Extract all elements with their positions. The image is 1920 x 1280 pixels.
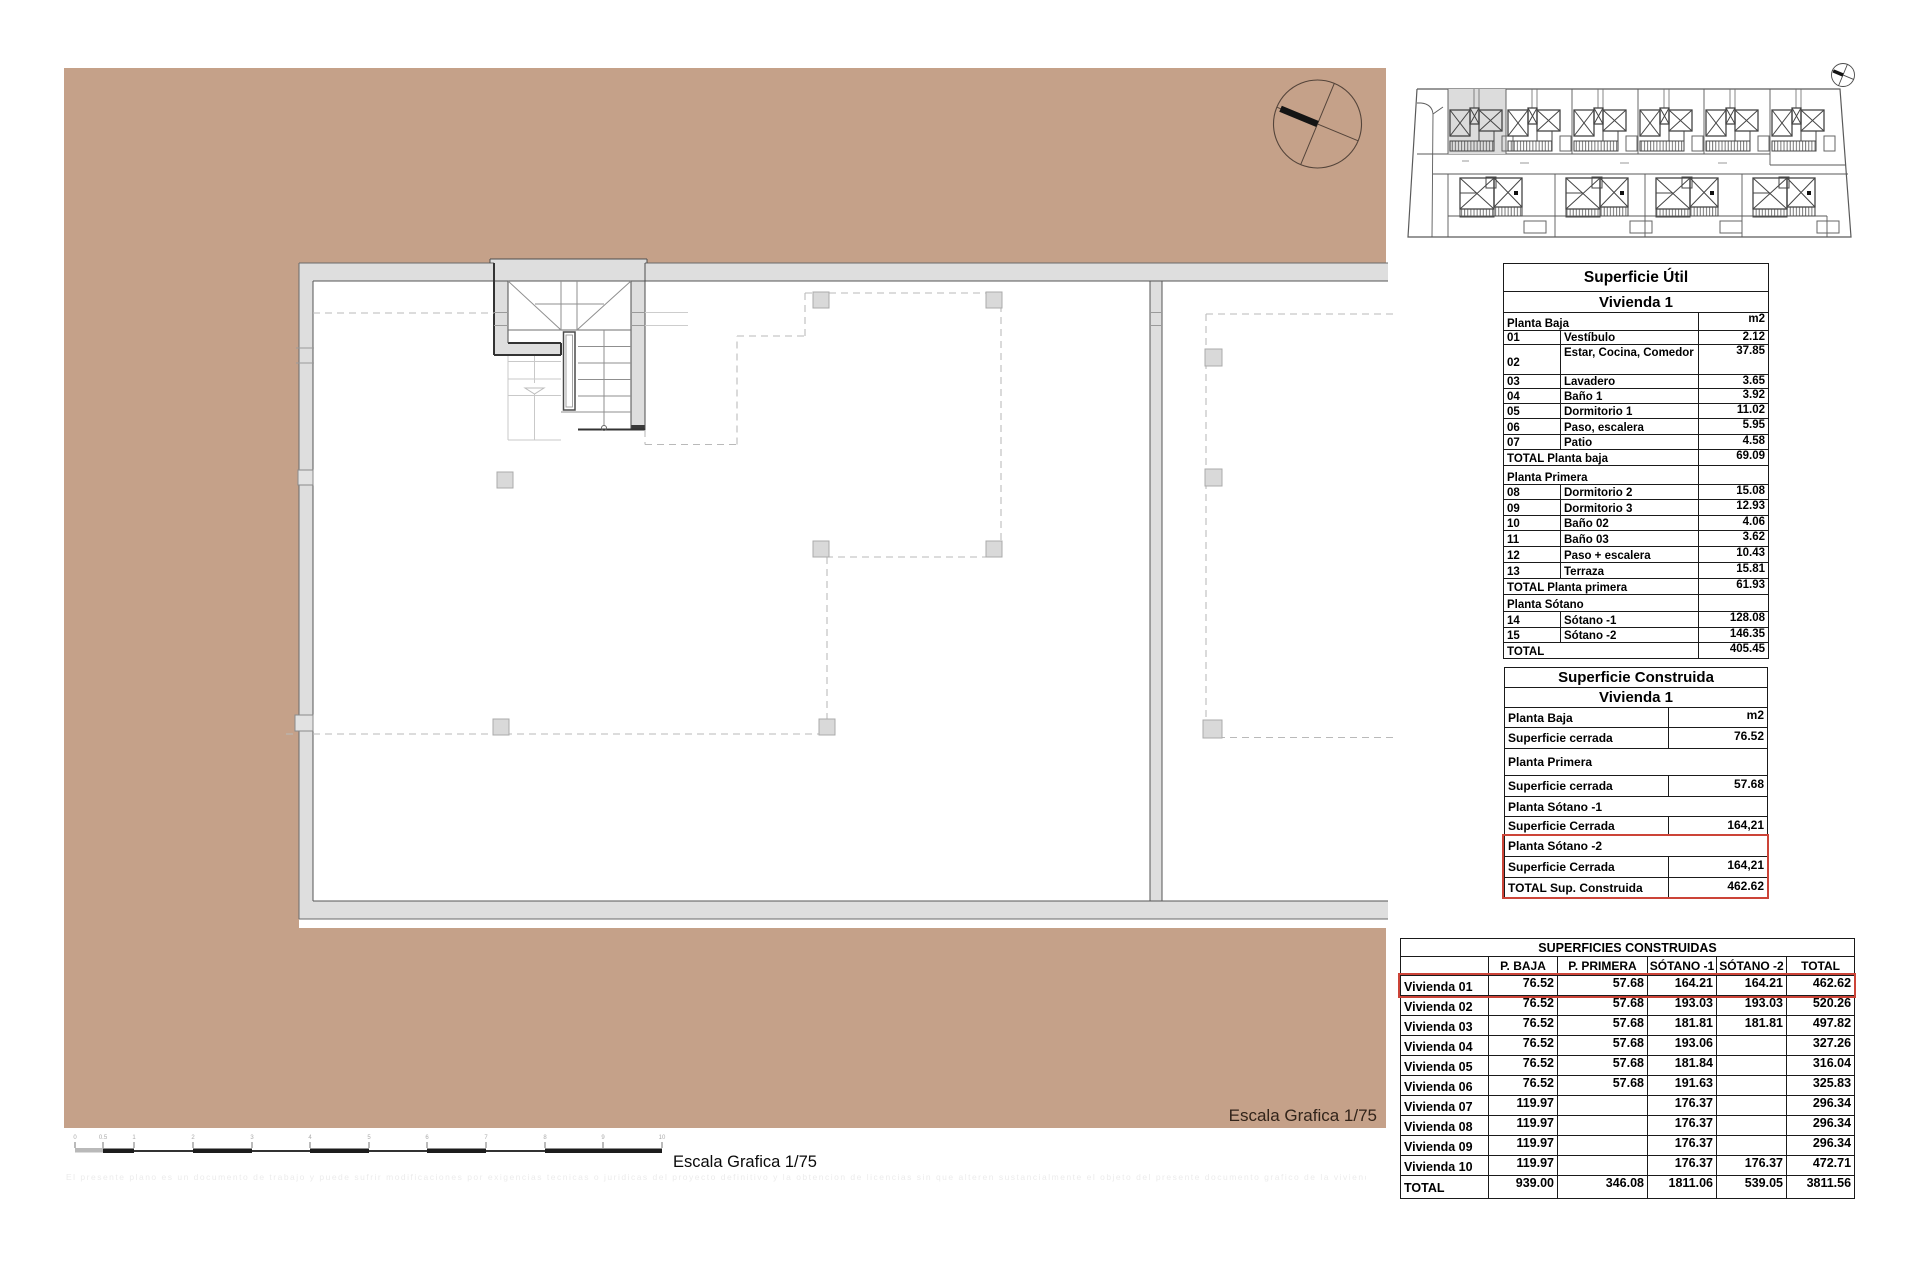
- svg-text:6: 6: [425, 1135, 429, 1141]
- svg-text:7: 7: [484, 1135, 488, 1141]
- svg-text:5: 5: [367, 1135, 371, 1141]
- svg-text:0: 0: [73, 1135, 77, 1141]
- svg-text:1: 1: [132, 1135, 136, 1141]
- svg-text:2: 2: [191, 1135, 195, 1141]
- svg-text:9: 9: [601, 1135, 605, 1141]
- svg-text:8: 8: [543, 1135, 547, 1141]
- svg-text:10: 10: [659, 1135, 666, 1141]
- svg-text:3: 3: [250, 1135, 254, 1141]
- svg-text:4: 4: [308, 1135, 312, 1141]
- svg-text:0.5: 0.5: [99, 1135, 108, 1141]
